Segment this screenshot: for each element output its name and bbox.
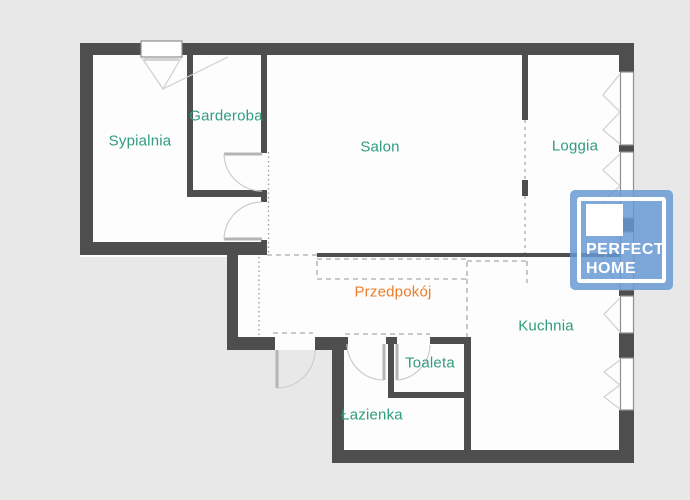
- wall-salon-loggia: [522, 55, 528, 120]
- wall-left: [80, 43, 93, 255]
- wall-bottom: [332, 450, 634, 463]
- wall-toaleta-left: [388, 337, 394, 398]
- wall-corridor-left: [227, 253, 238, 350]
- wall-garderoba-right: [261, 191, 267, 202]
- wall-entrance-right: [315, 337, 348, 350]
- wall-right-pier: [619, 145, 634, 152]
- logo-text: PERFECT HOME: [586, 240, 664, 278]
- wall-garderoba-bottom: [187, 190, 267, 197]
- window-symbol: [621, 358, 634, 410]
- room-label-toaleta: Toaleta: [405, 355, 455, 372]
- wall-toaleta-bottom: [388, 392, 471, 398]
- logo-square-icon: [586, 204, 623, 236]
- window-symbol: [621, 296, 634, 333]
- wall-right-pier: [619, 410, 634, 450]
- door-arc: [277, 350, 315, 388]
- wall-right-pier: [619, 333, 634, 358]
- room-label-loggia: Loggia: [552, 138, 598, 155]
- room-label-sypialnia: Sypialnia: [109, 133, 172, 150]
- logo-text-line1: PERFECT: [586, 240, 664, 259]
- room-label-kuchnia: Kuchnia: [518, 318, 574, 335]
- wall-right-pier: [619, 43, 634, 72]
- wall-sypialnia-bottom: [80, 242, 267, 255]
- window-symbol: [621, 72, 634, 145]
- room-label-przedpokoj: Przedpokój: [354, 284, 431, 301]
- window-sill: [144, 58, 179, 61]
- room-label-garderoba: Garderoba: [189, 108, 263, 125]
- wall-right-pier: [619, 290, 634, 296]
- logo-text-line2: HOME: [586, 259, 664, 278]
- room-label-salon: Salon: [360, 139, 399, 156]
- floor-plan-canvas: Sypialnia Garderoba Salon Loggia Przedpo…: [0, 0, 690, 500]
- wall-garderoba-right: [261, 240, 267, 255]
- wall-salon-loggia: [522, 180, 528, 196]
- room-label-lazienka: Łazienka: [341, 407, 403, 424]
- wall-garderoba-right: [261, 55, 267, 153]
- perfect-home-logo: PERFECT HOME: [570, 190, 673, 290]
- window-symbol: [141, 41, 182, 57]
- wall-entrance-left: [227, 337, 275, 350]
